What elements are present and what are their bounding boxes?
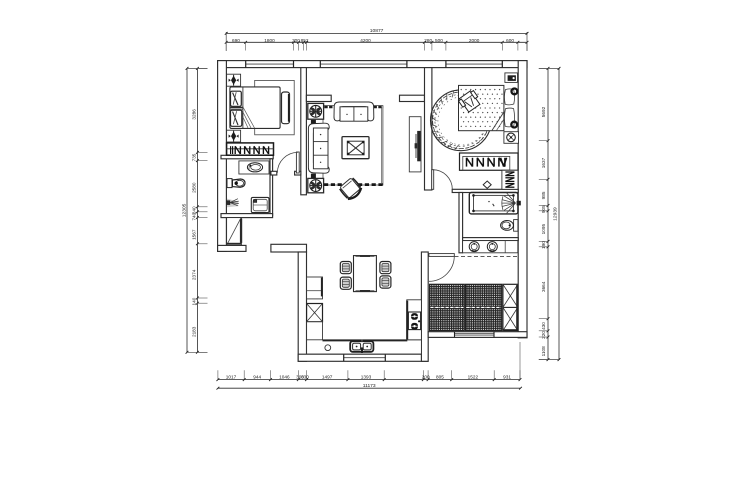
svg-text:3286: 3286: [191, 109, 196, 120]
svg-text:12939: 12939: [553, 207, 559, 221]
svg-text:740: 740: [191, 212, 196, 220]
svg-text:1095: 1095: [541, 223, 546, 234]
svg-text:985: 985: [541, 191, 546, 199]
svg-text:10877: 10877: [370, 28, 384, 34]
svg-text:1567: 1567: [191, 229, 196, 240]
svg-text:1046: 1046: [279, 374, 290, 379]
svg-text:3664: 3664: [541, 281, 546, 292]
svg-text:1393: 1393: [361, 374, 372, 379]
svg-text:944: 944: [253, 374, 261, 379]
svg-text:1497: 1497: [322, 374, 333, 379]
svg-text:600: 600: [506, 38, 514, 43]
svg-text:4200: 4200: [360, 38, 371, 43]
svg-text:5692: 5692: [541, 106, 546, 117]
svg-text:735: 735: [191, 153, 196, 161]
svg-text:12305: 12305: [181, 203, 187, 217]
svg-text:190: 190: [541, 241, 546, 249]
svg-text:852: 852: [301, 38, 309, 43]
svg-text:2374: 2374: [191, 269, 196, 280]
svg-text:300: 300: [292, 38, 300, 43]
svg-text:1522: 1522: [468, 374, 479, 379]
svg-text:430: 430: [541, 322, 546, 330]
svg-text:280: 280: [424, 38, 432, 43]
svg-text:690: 690: [232, 38, 240, 43]
svg-text:2580: 2580: [191, 182, 196, 193]
svg-text:200: 200: [422, 374, 430, 379]
svg-text:805: 805: [436, 374, 444, 379]
svg-text:1637: 1637: [541, 157, 546, 168]
svg-text:2183: 2183: [191, 326, 196, 337]
svg-text:2000: 2000: [469, 38, 480, 43]
svg-text:1017: 1017: [226, 374, 237, 379]
svg-text:330: 330: [301, 374, 309, 379]
svg-text:220: 220: [541, 331, 546, 339]
svg-text:1108: 1108: [541, 346, 546, 356]
svg-text:931: 931: [503, 374, 511, 379]
svg-text:11173: 11173: [363, 383, 376, 389]
svg-text:500: 500: [435, 38, 443, 43]
svg-text:1800: 1800: [264, 38, 275, 43]
svg-text:905: 905: [541, 205, 546, 213]
svg-text:140: 140: [191, 297, 196, 305]
